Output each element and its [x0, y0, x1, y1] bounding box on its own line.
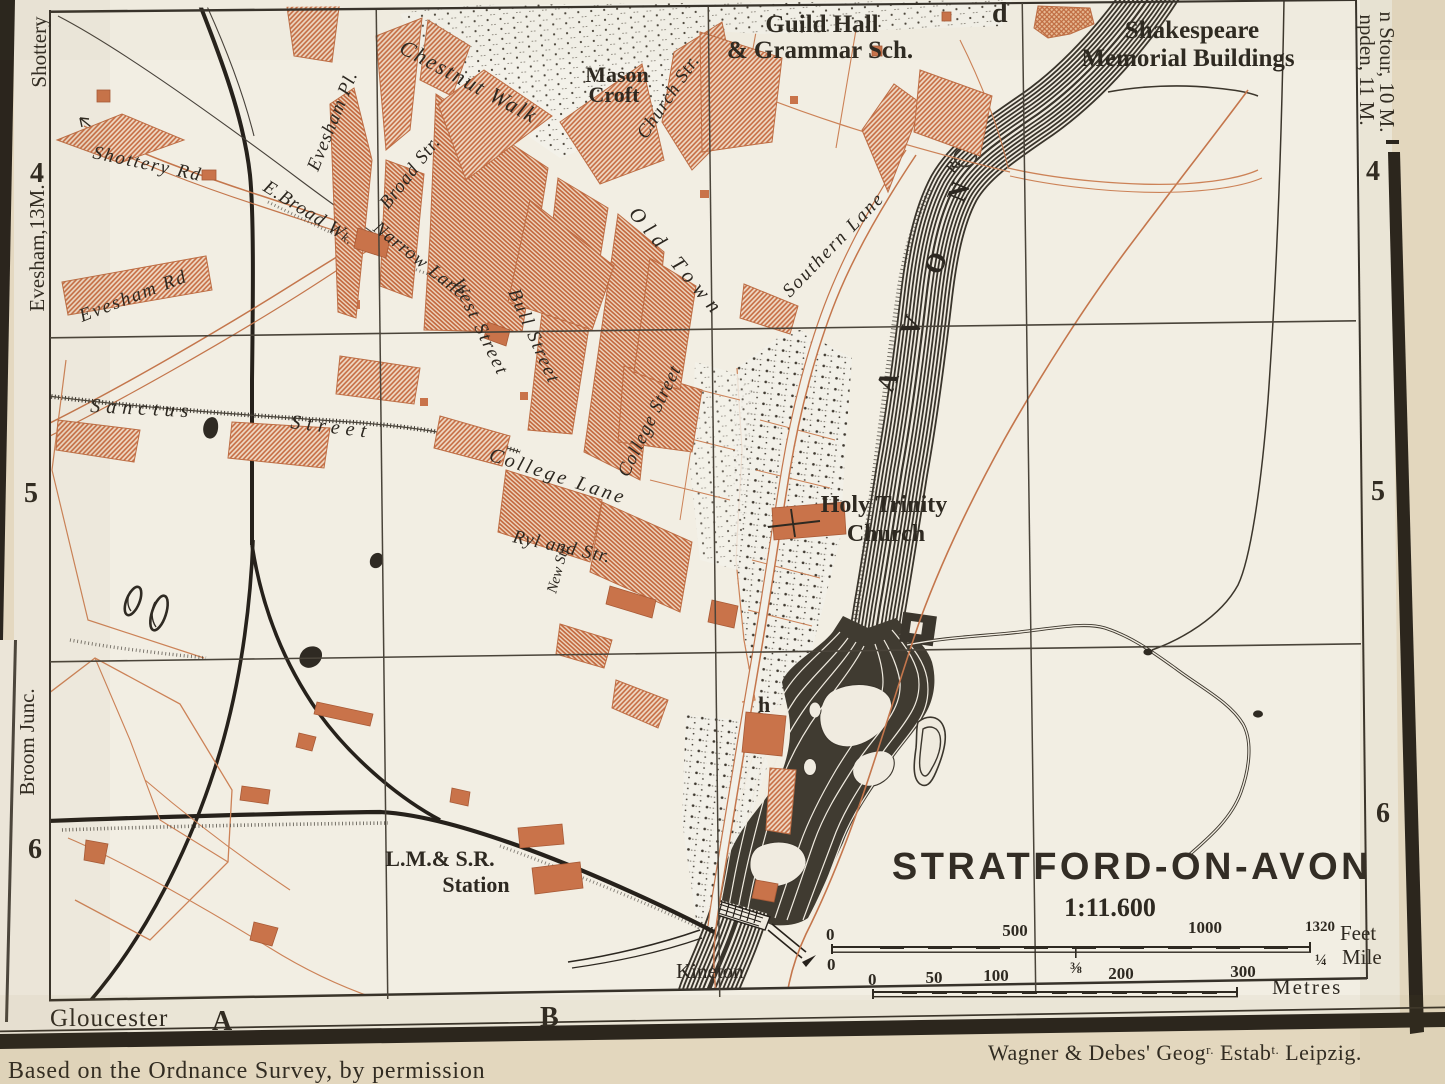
- svg-text:L.M.& S.R.: L.M.& S.R.: [385, 846, 494, 871]
- svg-text:Station: Station: [442, 872, 509, 897]
- svg-text:STRATFORD-ON-AVON: STRATFORD-ON-AVON: [892, 846, 1372, 888]
- svg-text:200: 200: [1108, 964, 1134, 983]
- svg-text:Croft: Croft: [589, 82, 641, 107]
- svg-text:0: 0: [827, 955, 836, 974]
- svg-text:Holy Trinity: Holy Trinity: [821, 492, 947, 518]
- svg-text:300: 300: [1230, 962, 1256, 981]
- svg-text:Church: Church: [847, 521, 925, 547]
- svg-text:1:11.600: 1:11.600: [1064, 893, 1156, 922]
- svg-text:50: 50: [926, 968, 943, 987]
- svg-text:0: 0: [868, 970, 877, 989]
- svg-text:h: h: [758, 692, 770, 717]
- svg-text:¼: ¼: [1315, 952, 1327, 969]
- svg-text:100: 100: [983, 966, 1009, 985]
- svg-text:⅜: ⅜: [1070, 960, 1082, 977]
- svg-text:1000: 1000: [1188, 918, 1222, 937]
- svg-text:1320: 1320: [1305, 919, 1335, 935]
- svg-text:0: 0: [826, 925, 835, 944]
- svg-text:500: 500: [1002, 921, 1028, 940]
- svg-text:Kineton: Kineton: [676, 959, 744, 983]
